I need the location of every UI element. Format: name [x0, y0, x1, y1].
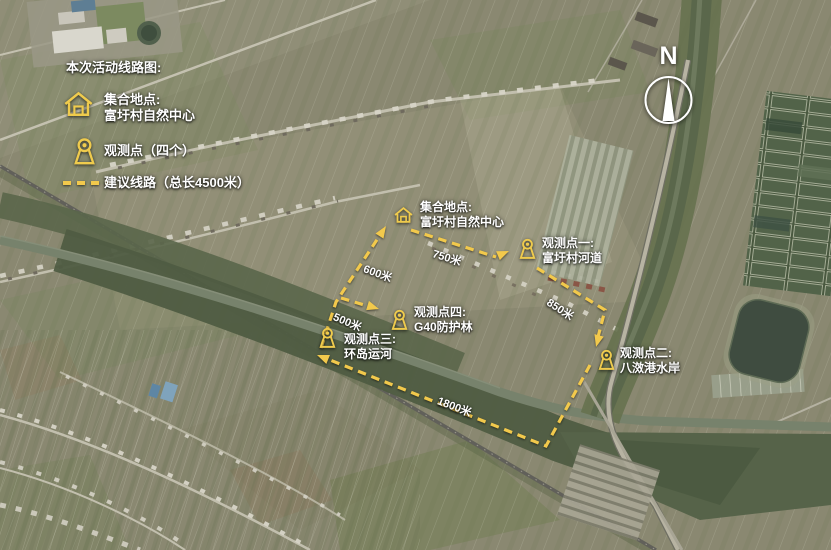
legend-observation-points-label: 观测点（四个）: [104, 143, 195, 159]
compass-needle: [663, 78, 675, 121]
satellite-map-background: [0, 0, 831, 550]
marker-observation-2-label: 观测点二: 八滧港水岸: [620, 346, 680, 376]
pin-icon: [518, 237, 537, 261]
marker-observation-1-label: 观测点一: 富圩村河道: [542, 236, 602, 266]
house-icon: [393, 206, 414, 224]
observation-pin-icon: [72, 136, 97, 167]
legend-route-label: 建议线路（总长4500米）: [104, 175, 250, 191]
compass: N: [640, 42, 698, 130]
activity-route-map: 本次活动线路图: 集合地点: 富圩村自然中心 观测点（四个） 建议线路（总长45…: [0, 0, 831, 550]
marker-observation-4-label: 观测点四: G40防护林: [414, 305, 473, 335]
pin-icon: [597, 348, 616, 372]
marker-meeting-point-label: 集合地点: 富圩村自然中心: [420, 200, 504, 230]
house-icon: [62, 90, 95, 118]
legend-meeting-point-label: 集合地点: 富圩村自然中心: [104, 92, 195, 124]
pin-icon: [390, 308, 409, 332]
legend-title: 本次活动线路图:: [66, 60, 161, 75]
pin-icon: [318, 326, 337, 350]
marker-observation-3-label: 观测点三: 环岛运河: [344, 332, 396, 362]
